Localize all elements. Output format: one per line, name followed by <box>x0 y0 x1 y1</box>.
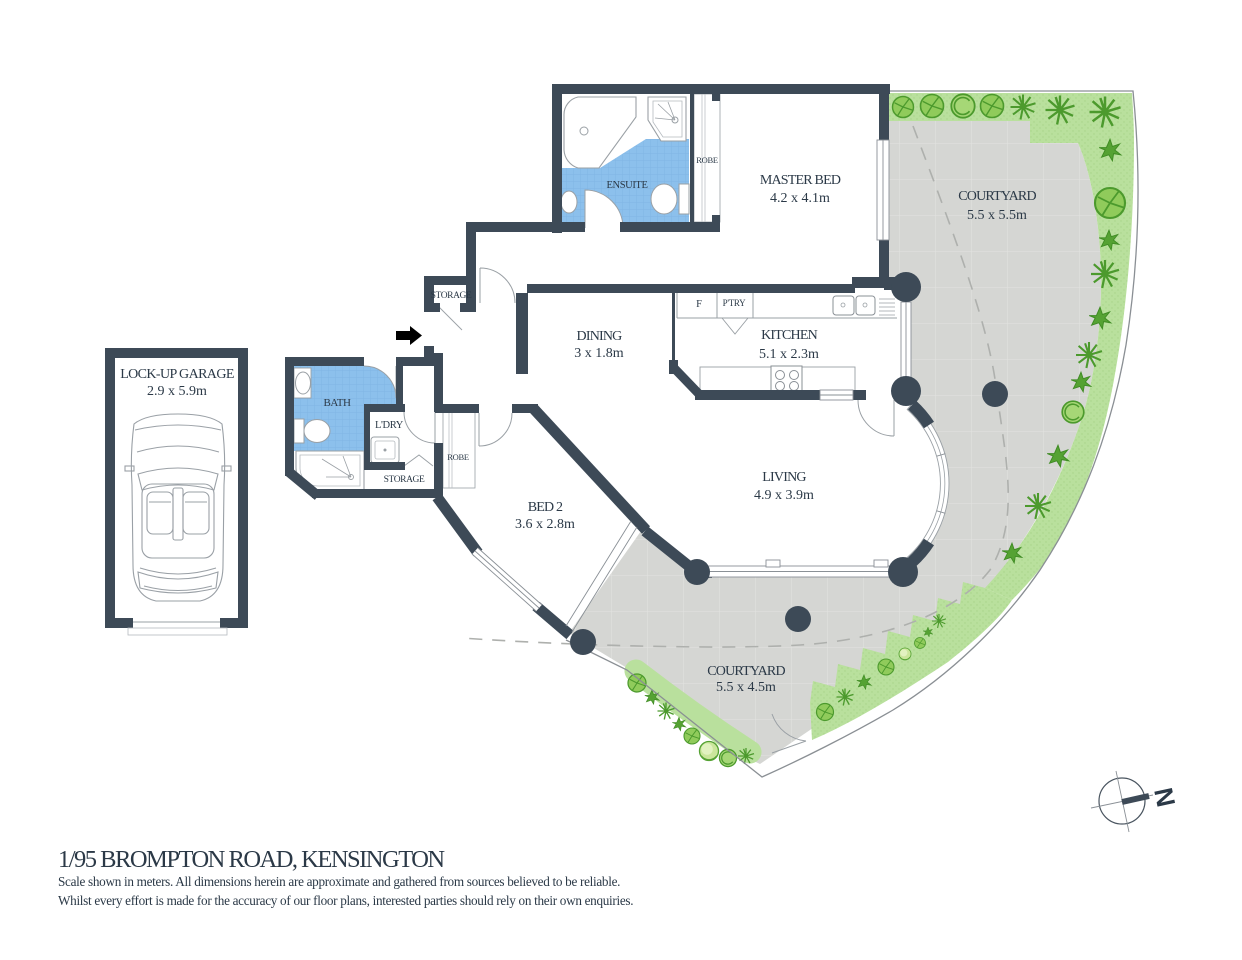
svg-text:LOCK-UP GARAGE: LOCK-UP GARAGE <box>120 367 234 382</box>
svg-text:P'TRY: P'TRY <box>723 298 746 308</box>
svg-text:STORAGE: STORAGE <box>384 475 425 485</box>
svg-text:3 x 1.8m: 3 x 1.8m <box>574 346 624 361</box>
svg-text:ENSUITE: ENSUITE <box>607 180 648 191</box>
svg-text:N: N <box>1148 785 1181 810</box>
svg-text:5.5 x 5.5m: 5.5 x 5.5m <box>967 208 1027 223</box>
svg-text:LIVING: LIVING <box>762 470 806 485</box>
svg-text:ROBE: ROBE <box>696 155 718 165</box>
svg-text:BATH: BATH <box>323 397 351 409</box>
svg-text:BED 2: BED 2 <box>528 500 563 515</box>
svg-text:5.1 x 2.3m: 5.1 x 2.3m <box>759 347 819 362</box>
svg-text:1/95 BROMPTON ROAD, KENSINGTON: 1/95 BROMPTON ROAD, KENSINGTON <box>58 846 445 873</box>
svg-text:5.5 x 4.5m: 5.5 x 4.5m <box>716 680 776 695</box>
svg-text:L'DRY: L'DRY <box>375 420 404 431</box>
svg-text:STORAGE: STORAGE <box>431 291 472 301</box>
svg-text:DINING: DINING <box>577 329 623 344</box>
svg-text:ROBE: ROBE <box>447 452 469 462</box>
svg-text:F: F <box>696 299 702 310</box>
svg-text:3.6 x 2.8m: 3.6 x 2.8m <box>515 517 575 532</box>
svg-text:COURTYARD: COURTYARD <box>958 189 1036 204</box>
svg-text:COURTYARD: COURTYARD <box>707 664 785 679</box>
svg-text:MASTER BED: MASTER BED <box>760 173 841 188</box>
svg-text:4.9 x 3.9m: 4.9 x 3.9m <box>754 488 814 503</box>
svg-text:Scale shown in meters. All dim: Scale shown in meters. All dimensions he… <box>58 874 620 889</box>
svg-text:2.9 x 5.9m: 2.9 x 5.9m <box>147 384 207 399</box>
svg-text:KITCHEN: KITCHEN <box>761 328 818 343</box>
svg-text:Whilst every effort is made fo: Whilst every effort is made for the accu… <box>58 893 633 908</box>
svg-text:4.2 x 4.1m: 4.2 x 4.1m <box>770 191 830 206</box>
